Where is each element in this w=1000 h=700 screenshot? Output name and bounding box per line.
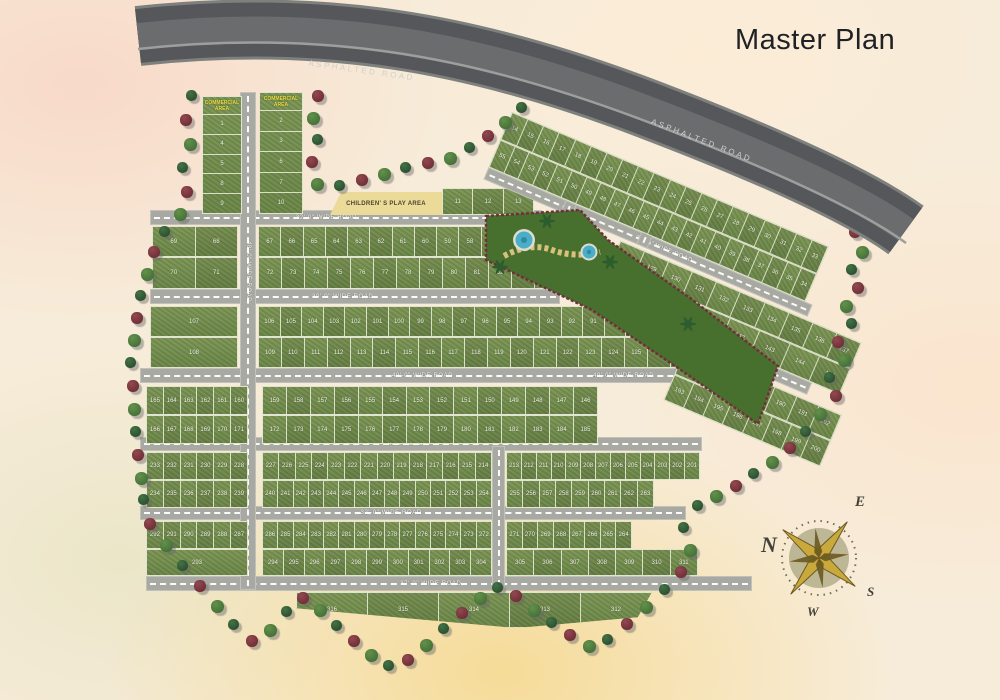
master-plan-canvas: 32'-0" WIDE ROAD30'-0" WIDE ROAD40'-0" W… (0, 0, 1000, 700)
compass-rose: N E S W (755, 492, 885, 622)
compass-west: W (807, 604, 819, 620)
compass-east: E (855, 494, 865, 511)
asphalted-road-label: ASPHALTED ROAD (650, 117, 753, 164)
annotation-layer: ASPHALTED ROAD ASPHALTED ROAD Master Pla… (0, 0, 1000, 700)
compass-south: S (867, 584, 874, 600)
compass-north: N (761, 532, 777, 558)
page-title: Master Plan (735, 24, 895, 57)
asphalted-road-label: ASPHALTED ROAD (308, 59, 416, 83)
